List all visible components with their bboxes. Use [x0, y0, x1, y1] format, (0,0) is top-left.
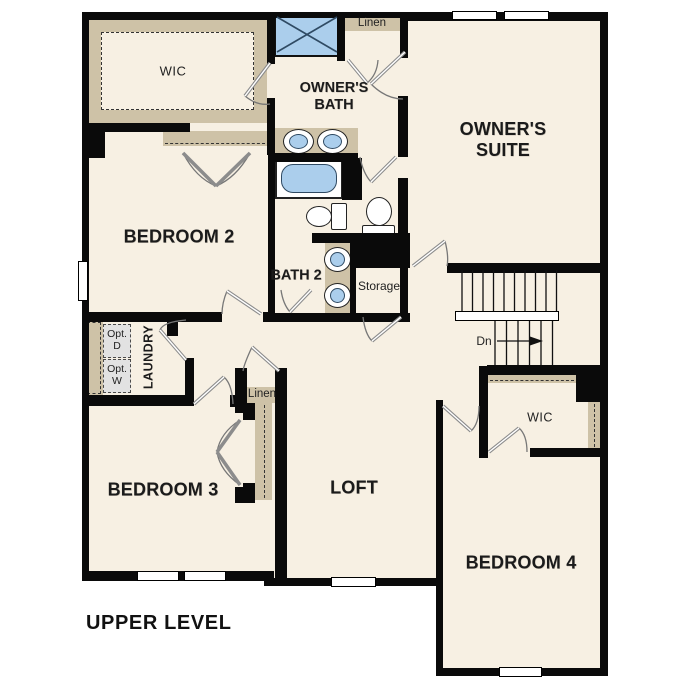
wall: [600, 273, 608, 375]
wall: [267, 131, 275, 155]
bedroom3-closet-strip: [255, 403, 272, 500]
wall: [479, 366, 488, 458]
optional-dryer-label: Opt. D: [107, 329, 127, 352]
wall: [82, 131, 105, 158]
wall: [82, 312, 222, 322]
room-label-bedroom2: BEDROOM 2: [124, 226, 235, 247]
wall: [243, 483, 255, 503]
stair-landing: [455, 311, 559, 321]
sink-icon: [317, 129, 348, 154]
wall: [167, 312, 178, 336]
room-label-laundry: LAUNDRY: [142, 325, 157, 389]
wall: [268, 158, 275, 315]
wall: [398, 178, 408, 235]
window: [499, 667, 542, 677]
wall: [436, 400, 443, 668]
floor-bedroom4-wing: [436, 366, 608, 676]
toilet-icon: [366, 197, 392, 226]
wall: [350, 233, 410, 268]
room-label-bedroom3: BEDROOM 3: [108, 479, 219, 500]
wall: [243, 403, 255, 420]
room-label-storage: Storage: [358, 279, 400, 293]
room-label-owners-bath: OWNER'S BATH: [300, 80, 369, 114]
floor-plan: Opt. D Opt. W: [0, 0, 687, 687]
toilet-tank-icon: [331, 203, 347, 230]
window: [504, 11, 549, 20]
wall: [400, 17, 408, 58]
wall: [600, 12, 608, 273]
wall: [82, 395, 190, 406]
wall: [530, 448, 602, 457]
optional-dryer-box: Opt. D: [103, 324, 131, 358]
wall: [275, 368, 287, 578]
optional-washer-label: Opt. W: [107, 364, 127, 387]
room-label-loft: LOFT: [330, 477, 378, 498]
wall: [263, 312, 275, 322]
wall: [398, 96, 408, 157]
wall: [576, 366, 608, 402]
stairs-down-label: Dn: [476, 334, 491, 348]
wall: [267, 18, 275, 64]
room-label-owners-suite: OWNER'S SUITE: [460, 119, 547, 161]
window: [137, 571, 179, 581]
window: [331, 577, 376, 587]
wall: [82, 12, 274, 20]
sink-icon: [324, 283, 351, 308]
bathtub-icon: [275, 158, 343, 199]
wall: [337, 17, 345, 61]
room-label-bath2: BATH 2: [270, 267, 321, 284]
shower-icon: [274, 13, 340, 57]
wall: [268, 313, 410, 322]
window: [184, 571, 226, 581]
room-label-linen-upper: Linen: [358, 17, 386, 31]
window: [78, 261, 88, 301]
room-label-linen-middle: Linen: [248, 388, 276, 402]
wall: [447, 263, 608, 273]
wall: [342, 158, 362, 200]
sink-icon: [283, 129, 314, 154]
optional-washer-box: Opt. W: [103, 359, 131, 393]
room-label-wic-upper: WIC: [160, 63, 187, 78]
room-label-wic-bedroom4: WIC: [527, 411, 553, 426]
wic4-side-shelf: [588, 402, 600, 454]
bedroom2-closet-shelf: [163, 131, 267, 146]
room-label-bedroom4: BEDROOM 4: [466, 552, 577, 573]
wall: [600, 366, 608, 676]
sink-icon: [324, 247, 351, 272]
wall: [400, 268, 408, 315]
toilet-icon: [306, 206, 332, 227]
wall: [350, 268, 356, 315]
page-title: UPPER LEVEL: [86, 612, 232, 635]
floor-loft-wing: [264, 340, 440, 586]
window: [452, 11, 497, 20]
